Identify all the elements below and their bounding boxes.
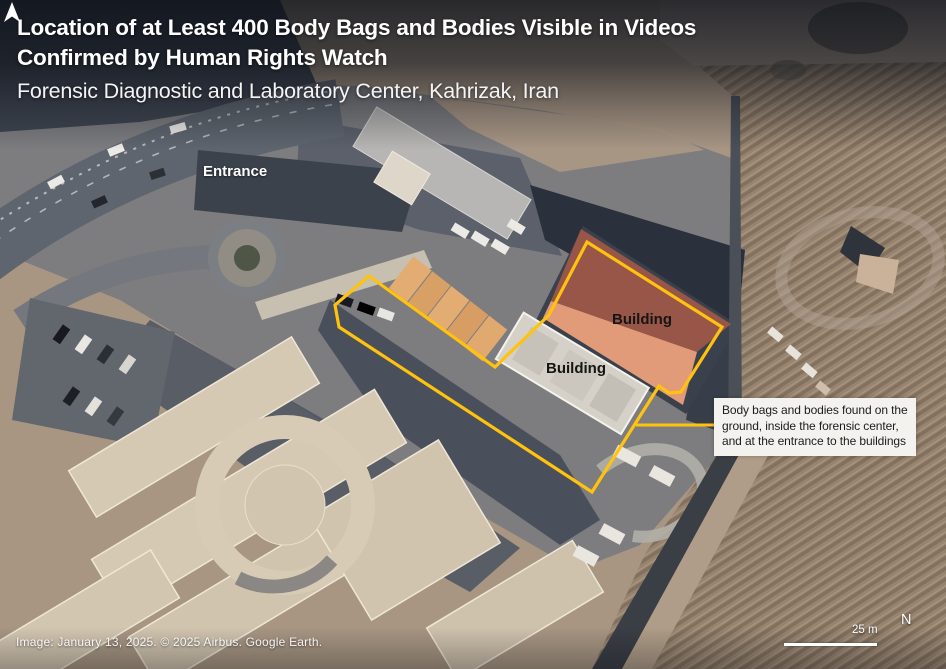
title-line-1: Location of at Least 400 Body Bags and B…	[17, 13, 696, 43]
scale-bar	[784, 643, 877, 646]
callout-box: Body bags and bodies found on the ground…	[714, 398, 916, 456]
north-arrow-icon	[0, 0, 24, 24]
callout-line: ground, inside the forensic center,	[722, 419, 908, 435]
header: Location of at Least 400 Body Bags and B…	[17, 13, 696, 105]
entrance-label: Entrance	[203, 164, 267, 179]
callout-line: Body bags and bodies found on the	[722, 403, 908, 419]
title-line-2: Confirmed by Human Rights Watch	[17, 43, 696, 73]
building-label-lower: Building	[546, 361, 606, 376]
north-label: N	[901, 612, 911, 628]
map-subtitle: Forensic Diagnostic and Laboratory Cente…	[17, 78, 696, 105]
callout-line: and at the entrance to the buildings	[722, 434, 908, 450]
image-attribution: Image: January 13, 2025. © 2025 Airbus. …	[16, 635, 322, 649]
hrw-satellite-map: Location of at Least 400 Body Bags and B…	[0, 0, 946, 669]
building-label-upper: Building	[612, 312, 672, 327]
scale-bar-label: 25 m	[852, 624, 878, 636]
map-title: Location of at Least 400 Body Bags and B…	[17, 13, 696, 73]
